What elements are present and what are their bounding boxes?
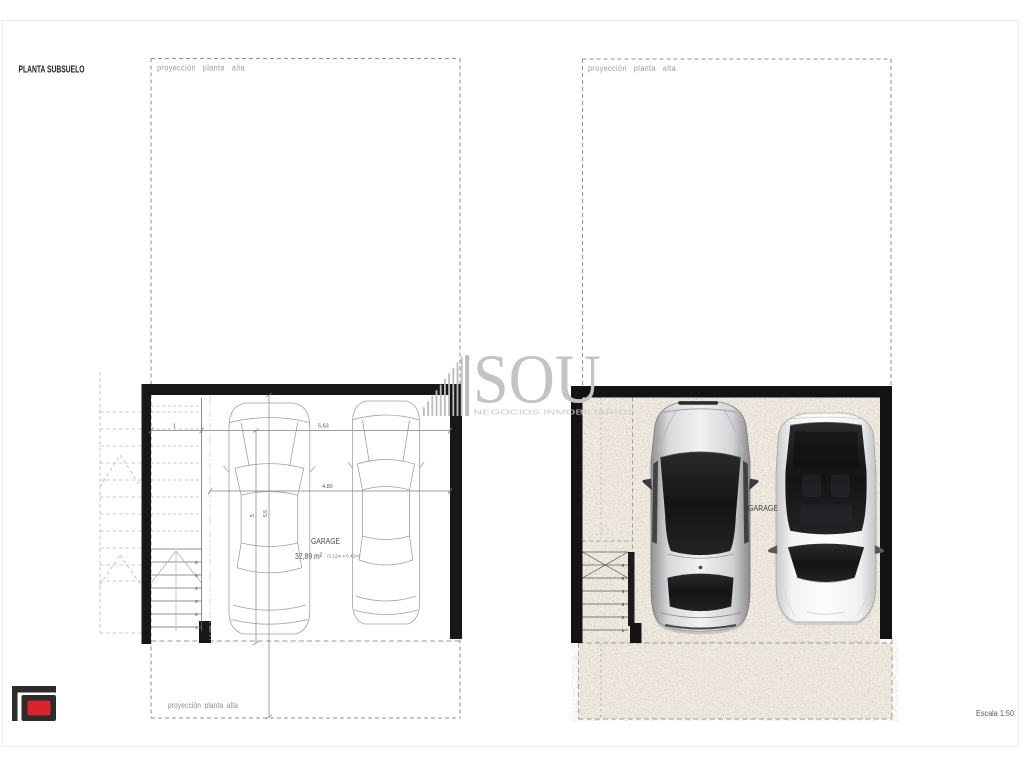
svg-text:GARAGE: GARAGE bbox=[311, 536, 340, 546]
svg-text:PLANTA SUBSUELO: PLANTA SUBSUELO bbox=[19, 65, 85, 76]
svg-text:5: 5 bbox=[250, 514, 256, 517]
svg-text:1: 1 bbox=[195, 625, 198, 631]
svg-text:5,63: 5,63 bbox=[318, 424, 329, 430]
svg-text:2: 2 bbox=[195, 612, 198, 618]
svg-text:5: 5 bbox=[195, 573, 198, 579]
svg-text:4: 4 bbox=[622, 589, 625, 595]
svg-text:1: 1 bbox=[622, 628, 625, 634]
svg-text:3: 3 bbox=[195, 599, 198, 605]
svg-text:2: 2 bbox=[622, 615, 625, 621]
svg-text:3: 3 bbox=[622, 602, 625, 608]
svg-text:5,5: 5,5 bbox=[263, 510, 269, 517]
svg-text:proyección planta alta: proyección planta alta bbox=[157, 64, 245, 73]
svg-text:1: 1 bbox=[173, 424, 176, 430]
svg-text:Escala 1:50: Escala 1:50 bbox=[976, 709, 1014, 718]
svg-text:NEGOCIOS INMOBILIARIOS: NEGOCIOS INMOBILIARIOS bbox=[474, 408, 636, 417]
svg-text:(5.12m x 6.42m): (5.12m x 6.42m) bbox=[327, 554, 361, 559]
svg-text:5: 5 bbox=[622, 576, 625, 582]
svg-text:6: 6 bbox=[622, 563, 625, 569]
svg-text:proyección planta alta: proyección planta alta bbox=[168, 701, 238, 710]
svg-text:4,80: 4,80 bbox=[322, 484, 333, 490]
svg-text:GARAGE: GARAGE bbox=[748, 504, 778, 513]
svg-text:4: 4 bbox=[195, 586, 198, 592]
svg-text:proyección planta alta: proyección planta alta bbox=[588, 64, 676, 73]
svg-text:6: 6 bbox=[195, 560, 198, 566]
